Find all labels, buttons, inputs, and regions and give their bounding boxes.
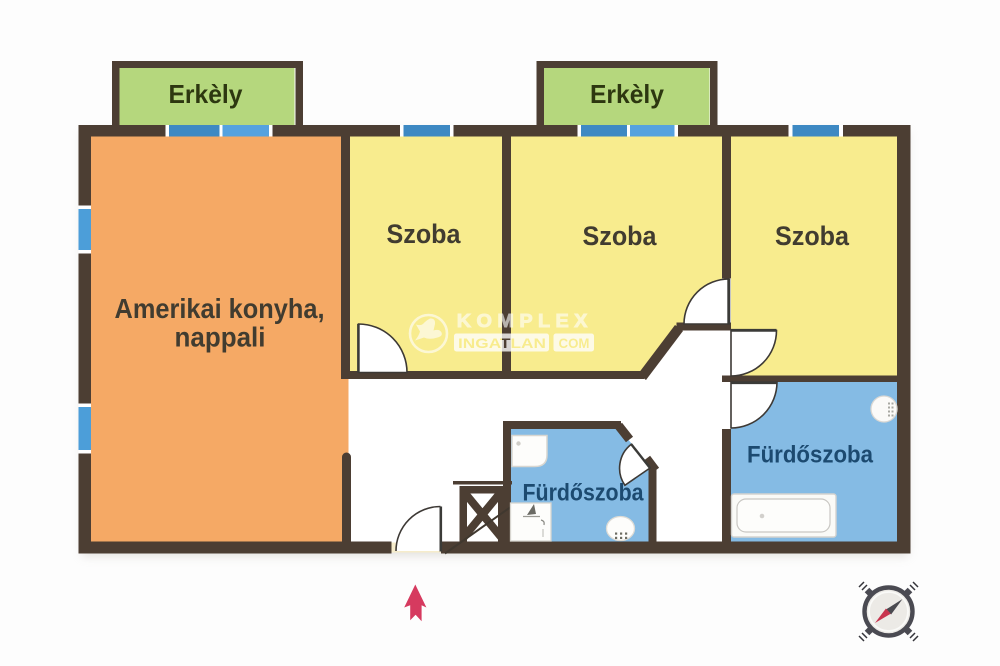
svg-text:nappali: nappali xyxy=(175,322,266,353)
svg-text:Fürdőszoba: Fürdőszoba xyxy=(523,480,644,507)
svg-text:Szoba: Szoba xyxy=(387,219,462,249)
svg-text:Amerikai konyha,: Amerikai konyha, xyxy=(115,293,325,324)
svg-text:Fürdőszoba: Fürdőszoba xyxy=(747,442,873,469)
svg-text:Szoba: Szoba xyxy=(583,221,658,251)
svg-text:Erkèly: Erkèly xyxy=(169,79,243,109)
svg-text:Szoba: Szoba xyxy=(775,221,850,251)
svg-text:Erkèly: Erkèly xyxy=(590,79,664,109)
svg-text:KOMPLEX: KOMPLEX xyxy=(457,310,593,331)
